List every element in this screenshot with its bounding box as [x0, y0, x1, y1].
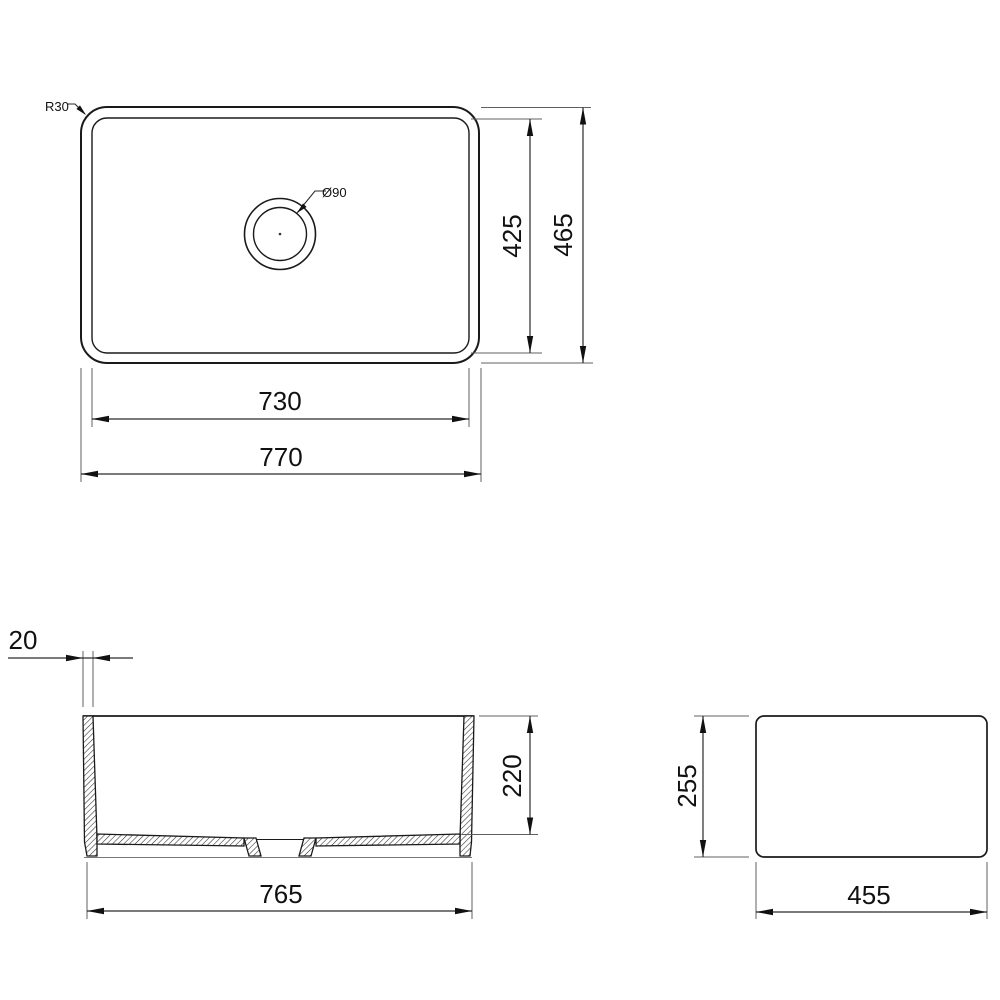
dim-label-bowl-depth: 220: [497, 754, 527, 797]
side-view-outline: [756, 716, 987, 857]
dim-label-inner-width: 730: [258, 386, 301, 416]
dim-label-wall-thickness: 20: [9, 625, 38, 655]
radius-label: R30: [45, 99, 69, 114]
dim-label-outer-width: 770: [259, 442, 302, 472]
drain-label: Ø90: [322, 185, 347, 200]
drain-center-mark: [279, 233, 282, 236]
sink-technical-drawing: R30 Ø90 425 465: [0, 0, 1000, 1000]
dim-label-side-height: 255: [672, 764, 702, 807]
dim-label-side-width: 455: [847, 880, 890, 910]
dim-label-outer-height: 465: [548, 213, 578, 256]
dim-label-inner-height: 425: [497, 214, 527, 257]
dim-label-base-width: 765: [259, 879, 302, 909]
